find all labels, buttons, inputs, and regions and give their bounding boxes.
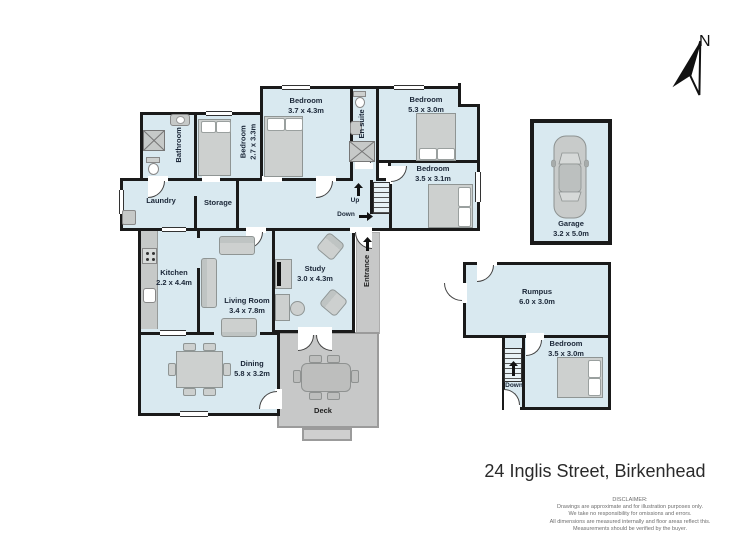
room-label-storage: Storage: [196, 198, 240, 208]
stairs-up: [373, 182, 390, 214]
label-entrance: Entrance: [362, 241, 372, 301]
door-gap: [504, 404, 520, 411]
label-up: Up: [346, 197, 364, 205]
door-gap: [355, 163, 373, 169]
compass-north-label: N: [699, 33, 711, 51]
sofa: [219, 236, 255, 255]
disclaimer-heading: DISCLAIMER:: [535, 497, 725, 504]
sofa: [221, 318, 257, 337]
window: [162, 227, 186, 232]
room-label-dining: Dining5.8 x 3.2m: [226, 359, 278, 379]
chair: [203, 388, 216, 396]
window: [282, 85, 310, 90]
pillow: [216, 121, 231, 133]
french-door-gap: [298, 327, 332, 335]
stove-burners: [146, 252, 149, 255]
chair: [183, 343, 196, 351]
down-stairs-arrow-icon: [509, 361, 518, 376]
door-arc: [444, 283, 462, 301]
room-label-rumpus: Rumpus6.0 x 3.0m: [497, 287, 577, 307]
outdoor-chair: [327, 392, 340, 400]
label-down: Down: [335, 211, 357, 219]
desk-chair: [290, 301, 305, 316]
laundry-tub: [122, 210, 136, 225]
pillow: [437, 148, 455, 160]
window: [394, 85, 424, 90]
outdoor-chair: [309, 392, 322, 400]
chair: [183, 388, 196, 396]
room-label-garage: Garage3.2 x 5.0m: [540, 219, 602, 239]
pillow: [285, 118, 303, 131]
kitchen-sink: [143, 288, 156, 303]
outdoor-chair: [293, 370, 301, 383]
page-title: 24 Inglis Street, Birkenhead: [440, 461, 749, 482]
room-label-living: Living Room3.4 x 7.8m: [207, 296, 287, 316]
room-label-study: Study3.0 x 4.3m: [275, 264, 355, 284]
chair: [203, 343, 216, 351]
outdoor-table: [301, 363, 351, 392]
room-label-bedroom-3-5-3-1: Bedroom3.5 x 3.1m: [393, 164, 473, 184]
dining-table: [176, 351, 223, 388]
shower: [143, 130, 165, 151]
room-label-bedroom-3-5-3-0: Bedroom3.5 x 3.0m: [525, 339, 607, 359]
room-label-bathroom: Bathroom: [174, 115, 184, 175]
pillow: [267, 118, 285, 131]
room-label-bedroom-5-3: Bedroom5.3 x 3.0m: [386, 95, 466, 115]
north-arrow-icon: [668, 30, 724, 104]
pillow: [458, 207, 471, 227]
disclaimer-line: Measurements should be verified by the b…: [535, 526, 725, 533]
window: [475, 172, 481, 202]
pillow: [458, 187, 471, 207]
stove: [142, 248, 157, 264]
room-label-bedroom-3-7: Bedroom3.7 x 4.3m: [266, 96, 346, 116]
outdoor-chair: [327, 355, 340, 363]
deck-steps: [302, 428, 352, 441]
car-icon: [551, 134, 589, 220]
disclaimer-line: Drawings are approximate and for illustr…: [535, 504, 725, 511]
outdoor-chair: [309, 355, 322, 363]
door-gap: [202, 176, 220, 182]
pillow: [201, 121, 216, 133]
disclaimer: DISCLAIMER: Drawings are approximate and…: [535, 497, 725, 533]
label-down-lower: Down: [499, 382, 529, 390]
disclaimer-line: We take no responsibility for omissions …: [535, 511, 725, 518]
toilet-bowl: [148, 163, 159, 175]
pillow: [588, 378, 601, 396]
right-arrow-icon: [359, 212, 373, 221]
pillow: [588, 360, 601, 378]
window: [206, 111, 232, 116]
room-label-kitchen: Kitchen2.2 x 4.4m: [146, 268, 202, 288]
window: [180, 411, 208, 417]
pillow: [419, 148, 437, 160]
floor-plan-canvas: Bathroom Bedroom2.7 x 3.3m Bedroom3.7 x …: [0, 0, 749, 543]
up-arrow-icon: [354, 183, 363, 196]
chair: [168, 363, 176, 376]
room-label-laundry: Laundry: [138, 196, 184, 206]
room-label-deck: Deck: [303, 406, 343, 416]
room-label-bedroom-2-7: Bedroom2.7 x 3.3m: [238, 107, 258, 177]
outdoor-chair: [351, 370, 359, 383]
room-label-ensuite: En suite: [357, 94, 367, 154]
window: [160, 330, 186, 336]
disclaimer-line: All dimensions are measured internally a…: [535, 519, 725, 526]
